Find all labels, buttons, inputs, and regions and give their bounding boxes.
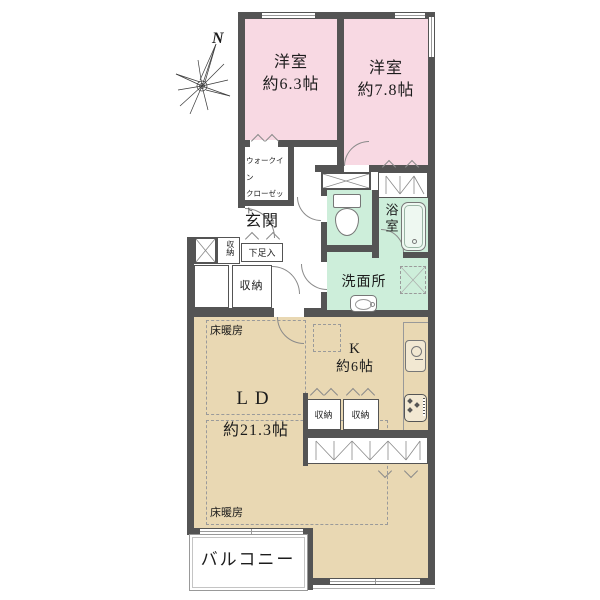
- wall-bath-west: [372, 190, 379, 252]
- wall-sanitary-west-b: [321, 222, 327, 262]
- washing-machine-space: [400, 266, 426, 294]
- balcony-label: バルコニー: [194, 549, 302, 572]
- wall-right: [428, 12, 435, 585]
- exterior-line: [313, 588, 435, 589]
- kitchen-label: K 約6帖: [320, 339, 390, 378]
- wall-hall-south-b: [304, 308, 321, 317]
- kitchen-storage-2-label: 収納: [344, 409, 377, 421]
- wall-between-bedrooms: [337, 19, 344, 172]
- window-bedroom1-north: [262, 13, 315, 18]
- bedroom2-label: 洋室 約7.8帖: [344, 58, 428, 101]
- wall-bedroom2-south-a: [315, 165, 344, 172]
- bedroom1-label: 洋室 約6.3帖: [245, 52, 337, 95]
- shoe-box-label: 下足入: [242, 247, 282, 259]
- bedroom1-size: 約6.3帖: [245, 74, 337, 96]
- kitchen-storage-box-1: 収納: [307, 399, 341, 430]
- bathtub-icon: [401, 202, 426, 251]
- wall-hall-south-a: [194, 308, 274, 317]
- washroom-door-arc: [301, 264, 327, 290]
- compass-north-label: N: [212, 28, 225, 50]
- wic-label: ウォークイン クローゼット: [246, 153, 290, 219]
- pipe-space-upper: [321, 172, 371, 190]
- ldk-floor-south: [313, 528, 428, 578]
- bedroom2-closet: [378, 172, 428, 198]
- pipe-space-entry: [194, 237, 217, 264]
- kitchen-closet: [307, 437, 428, 464]
- bathroom-label: 浴室: [382, 203, 400, 235]
- hall-storage-box: 収納: [232, 265, 272, 308]
- stove-icon: [404, 394, 427, 422]
- shoe-box: 下足入: [241, 243, 283, 262]
- hall-storage-label: 収納: [233, 279, 270, 294]
- entry-storage-box: 収納: [217, 237, 240, 264]
- entry-storage-label: 収納: [224, 240, 235, 256]
- floor-heating-label-bottom: 床暖房: [210, 506, 243, 521]
- kitchen-storage-1-label: 収納: [308, 409, 339, 421]
- wall-bath-south-a: [372, 252, 379, 258]
- wall-left-upper: [238, 12, 245, 208]
- bedroom1-name: 洋室: [245, 52, 337, 74]
- bedroom2-name: 洋室: [344, 58, 428, 80]
- entry-side-box: [194, 265, 229, 308]
- living-name: LD: [208, 386, 304, 412]
- wall-bedroom2-south-b: [369, 165, 428, 172]
- wall-washroom-south: [327, 310, 428, 317]
- wall-bedroom1-south-a: [238, 140, 250, 147]
- kitchen-storage-box-2: 収納: [343, 399, 379, 430]
- toilet-door-arc: [297, 197, 321, 221]
- wall-bath-south-b: [403, 252, 435, 258]
- wall-left-lower: [187, 237, 194, 535]
- balcony: バルコニー: [189, 534, 308, 591]
- hall-storage-door-arc: [272, 266, 300, 294]
- washroom-label: 洗面所: [330, 274, 398, 293]
- kitchen-sink-icon: [405, 340, 426, 372]
- window-bedroom2-east: [429, 17, 434, 57]
- compass-icon: [172, 30, 236, 114]
- toilet-icon: [331, 194, 363, 238]
- window-bedroom2-north: [395, 13, 425, 18]
- living-size: 約21.3帖: [208, 420, 304, 442]
- entrance-label: 玄関: [245, 211, 279, 233]
- washbasin-icon: [350, 295, 377, 312]
- window-bottom-right: [330, 579, 420, 584]
- wall-toilet-south: [321, 245, 378, 252]
- kitchen-size: 約6帖: [320, 359, 390, 378]
- wic-line1: ウォークイン: [246, 153, 290, 186]
- wall-bedroom1-south-b: [278, 140, 337, 147]
- wall-under-kstorage: [308, 430, 428, 437]
- floor-plan: 収納 下足入 収納 収納 収納 バルコニー: [0, 0, 600, 600]
- bedroom2-size: 約7.8帖: [344, 80, 428, 102]
- floor-heating-label-top: 床暖房: [210, 324, 243, 339]
- living-label: LD 約21.3帖: [208, 386, 304, 441]
- kitchen-name: K: [320, 339, 390, 359]
